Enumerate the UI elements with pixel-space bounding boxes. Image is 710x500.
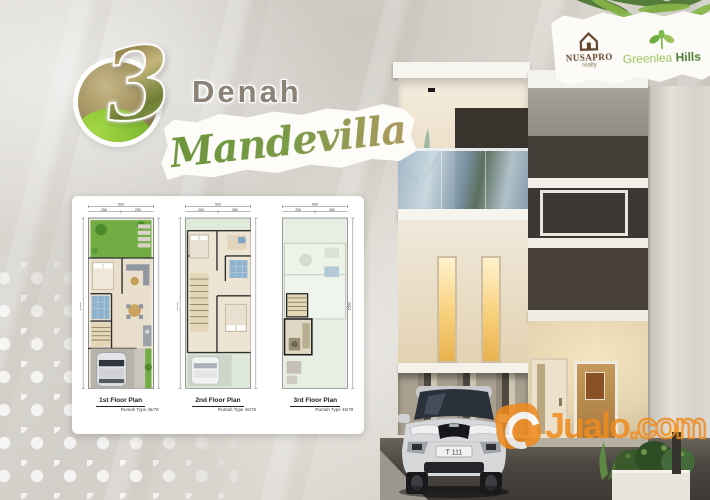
tower-gray-panel bbox=[528, 88, 648, 136]
page-title: Denah bbox=[192, 74, 302, 110]
floor-plan-1: 500 250 250 1500 bbox=[75, 201, 167, 434]
plan-2-label: 2nd Floor Plan bbox=[192, 397, 243, 407]
jualo-logo-icon bbox=[493, 401, 543, 451]
floor-plan-2: 500 250 250 1500 bbox=[172, 201, 264, 434]
greenlea-plant-icon bbox=[648, 29, 675, 50]
greenlea-first-word: Greenlea bbox=[623, 50, 673, 66]
floor-plan-3-drawing: 500 250 250 1500 bbox=[274, 201, 356, 397]
jualo-tld-text: .com bbox=[629, 405, 705, 446]
greenlea-logo: Greenlea Hills bbox=[622, 28, 701, 66]
floor-plan-1-drawing: 500 250 250 1500 bbox=[80, 201, 162, 397]
plan-1-label: 1st Floor Plan bbox=[96, 397, 145, 407]
svg-text:250: 250 bbox=[296, 208, 302, 212]
plan-1-sublabel: Rumah Type 46/78 bbox=[121, 407, 159, 413]
facade-band bbox=[398, 363, 528, 373]
tower-dark-panel-lower bbox=[528, 248, 648, 310]
svg-text:250: 250 bbox=[198, 208, 204, 212]
greenlea-second-word: Hills bbox=[675, 49, 701, 64]
house-parapet-left bbox=[393, 62, 530, 78]
svg-text:250: 250 bbox=[135, 208, 141, 212]
tall-window-right bbox=[481, 256, 501, 363]
poster-canvas: 3 Denah Mandevilla NUSAPRO realty Greenl… bbox=[0, 0, 710, 500]
plan-3-sublabel: Rumah Type 46/78 bbox=[315, 407, 353, 413]
tower-white-band-1 bbox=[528, 178, 648, 188]
tower-white-band-3 bbox=[528, 310, 648, 321]
glass-balustrade bbox=[398, 148, 528, 212]
white-planter bbox=[612, 470, 690, 500]
tower-dark-panel-upper bbox=[528, 136, 648, 178]
floor-plan-3: 500 250 250 1500 3rd Flo bbox=[269, 201, 361, 434]
svg-text:250: 250 bbox=[232, 208, 238, 212]
balcony-soffit bbox=[398, 209, 528, 220]
svg-text:1500: 1500 bbox=[348, 302, 352, 310]
tall-window-left bbox=[437, 256, 457, 363]
nusapro-logo: NUSAPRO realty bbox=[565, 30, 613, 69]
svg-text:500: 500 bbox=[312, 202, 318, 206]
glass-mullion bbox=[485, 151, 486, 212]
svg-text:250: 250 bbox=[101, 208, 107, 212]
plan-2-sublabel: Rumah Type 46/78 bbox=[218, 407, 256, 413]
greenlea-name: Greenlea Hills bbox=[623, 49, 702, 66]
tower-white-band-2 bbox=[528, 238, 648, 248]
svg-text:1500: 1500 bbox=[80, 302, 82, 310]
balcony-recess bbox=[398, 78, 528, 209]
jualo-logo-swoosh bbox=[499, 406, 547, 455]
lit-window bbox=[540, 190, 628, 236]
glass-mullion bbox=[441, 151, 442, 212]
svg-text:500: 500 bbox=[215, 202, 221, 206]
second-floor-wall bbox=[398, 220, 528, 363]
floor-plan-2-drawing: 500 250 250 1500 bbox=[177, 201, 259, 397]
svg-text:T 111: T 111 bbox=[446, 450, 463, 457]
jualo-wordmark: Jualo.com bbox=[545, 408, 705, 444]
plan-3-label: 3rd Floor Plan bbox=[290, 397, 340, 407]
floor-plan-panel: 500 250 250 1500 bbox=[72, 196, 364, 434]
number-badge: 3 bbox=[78, 62, 158, 142]
svg-text:1500: 1500 bbox=[177, 302, 179, 310]
badge-number: 3 bbox=[98, 32, 178, 138]
nusapro-house-icon bbox=[576, 31, 601, 52]
jualo-brand-text: Jualo bbox=[545, 405, 629, 446]
svg-text:250: 250 bbox=[329, 208, 335, 212]
ceiling-downlight bbox=[428, 88, 435, 92]
svg-text:500: 500 bbox=[118, 202, 124, 206]
jualo-watermark: Jualo.com bbox=[496, 404, 705, 448]
interior-artwork bbox=[585, 372, 605, 400]
nusapro-tagline: realty bbox=[582, 62, 597, 69]
